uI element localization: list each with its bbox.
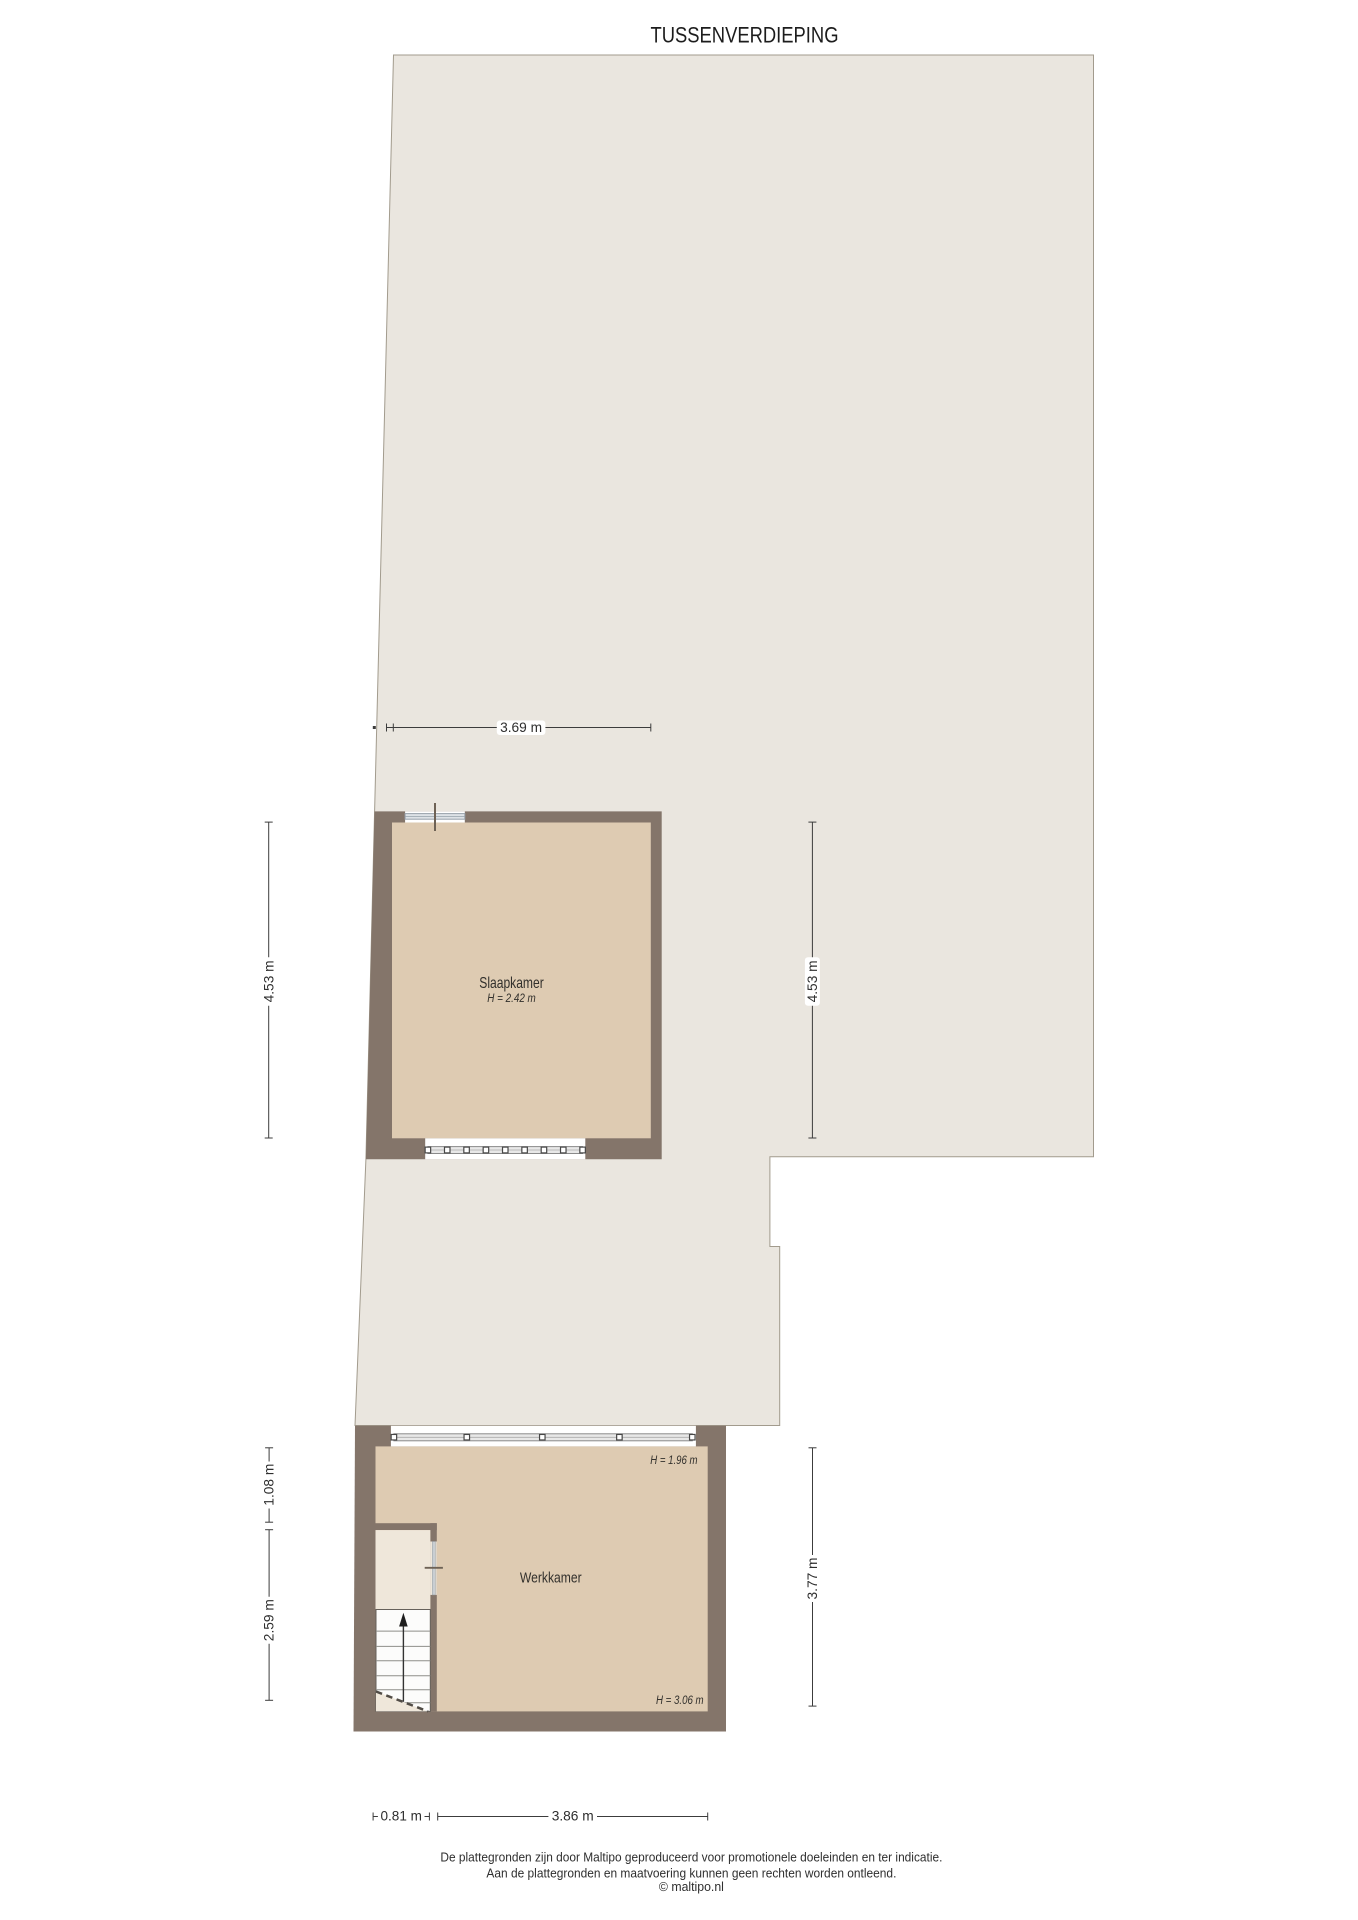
svg-text:4.53 m: 4.53 m bbox=[804, 960, 820, 1002]
svg-text:4.53 m: 4.53 m bbox=[260, 960, 276, 1002]
svg-text:Werkkamer: Werkkamer bbox=[520, 1569, 582, 1586]
svg-text:H = 1.96 m: H = 1.96 m bbox=[650, 1455, 698, 1467]
svg-text:© maltipo.nl: © maltipo.nl bbox=[659, 1879, 724, 1894]
svg-text:3.77 m: 3.77 m bbox=[804, 1558, 820, 1600]
svg-text:1.08 m: 1.08 m bbox=[261, 1464, 277, 1506]
svg-text:2.59 m: 2.59 m bbox=[261, 1599, 277, 1641]
svg-text:De plattegronden zijn door Mal: De plattegronden zijn door Maltipo gepro… bbox=[440, 1849, 942, 1864]
svg-text:H = 2.42 m: H = 2.42 m bbox=[487, 993, 536, 1005]
svg-text:H = 3.06 m: H = 3.06 m bbox=[656, 1695, 704, 1707]
svg-text:3.86 m: 3.86 m bbox=[552, 1808, 594, 1824]
svg-text:3.69 m: 3.69 m bbox=[500, 719, 542, 735]
svg-text:Slaapkamer: Slaapkamer bbox=[479, 975, 544, 992]
svg-text:0.81 m: 0.81 m bbox=[381, 1808, 422, 1824]
svg-text:TUSSENVERDIEPING: TUSSENVERDIEPING bbox=[651, 23, 839, 48]
